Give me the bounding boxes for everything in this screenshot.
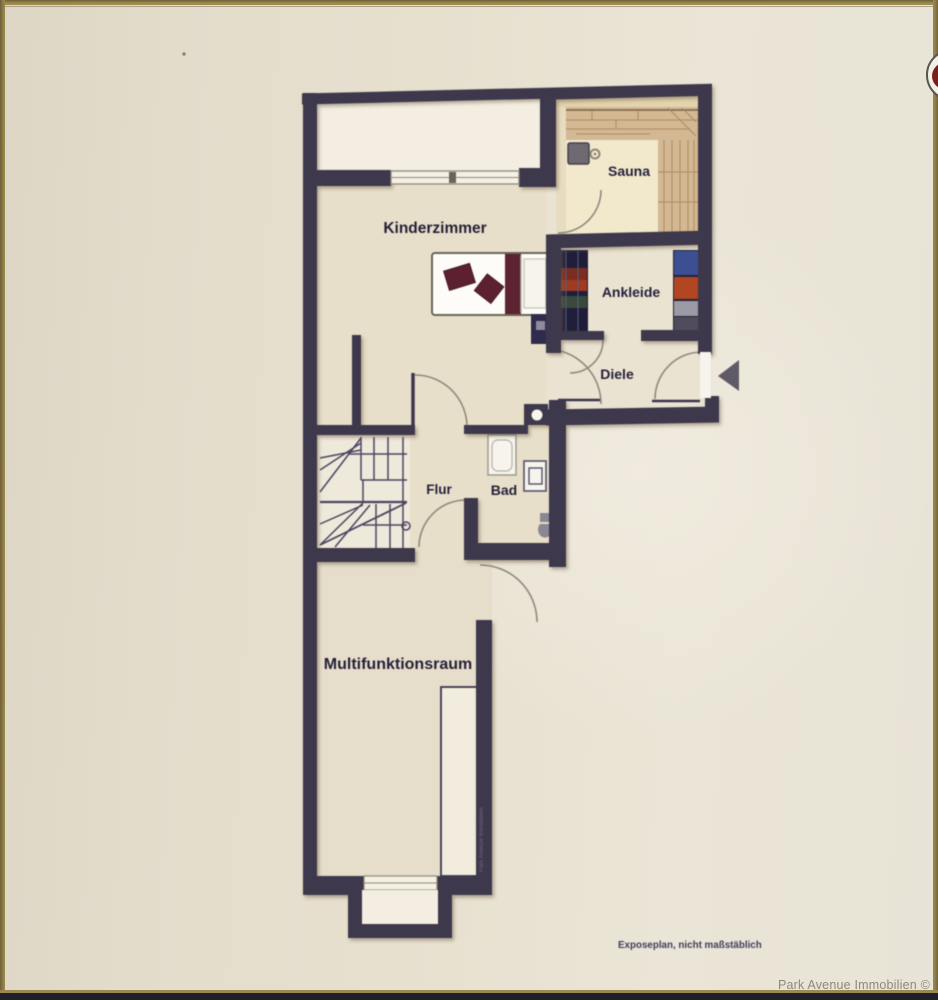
- svg-text:Multifunktionsraum: Multifunktionsraum: [324, 656, 472, 673]
- svg-text:Ankleide: Ankleide: [602, 284, 661, 300]
- svg-text:Bad: Bad: [491, 482, 517, 498]
- svg-text:Flur: Flur: [426, 482, 452, 497]
- svg-text:Diele: Diele: [600, 366, 634, 382]
- svg-text:Exposeplan, nicht maßstäblich: Exposeplan, nicht maßstäblich: [618, 940, 762, 951]
- svg-text:Park Avenue Immobilien: Park Avenue Immobilien: [479, 807, 485, 872]
- svg-text:Kinderzimmer: Kinderzimmer: [383, 220, 486, 237]
- svg-text:Sauna: Sauna: [608, 163, 650, 179]
